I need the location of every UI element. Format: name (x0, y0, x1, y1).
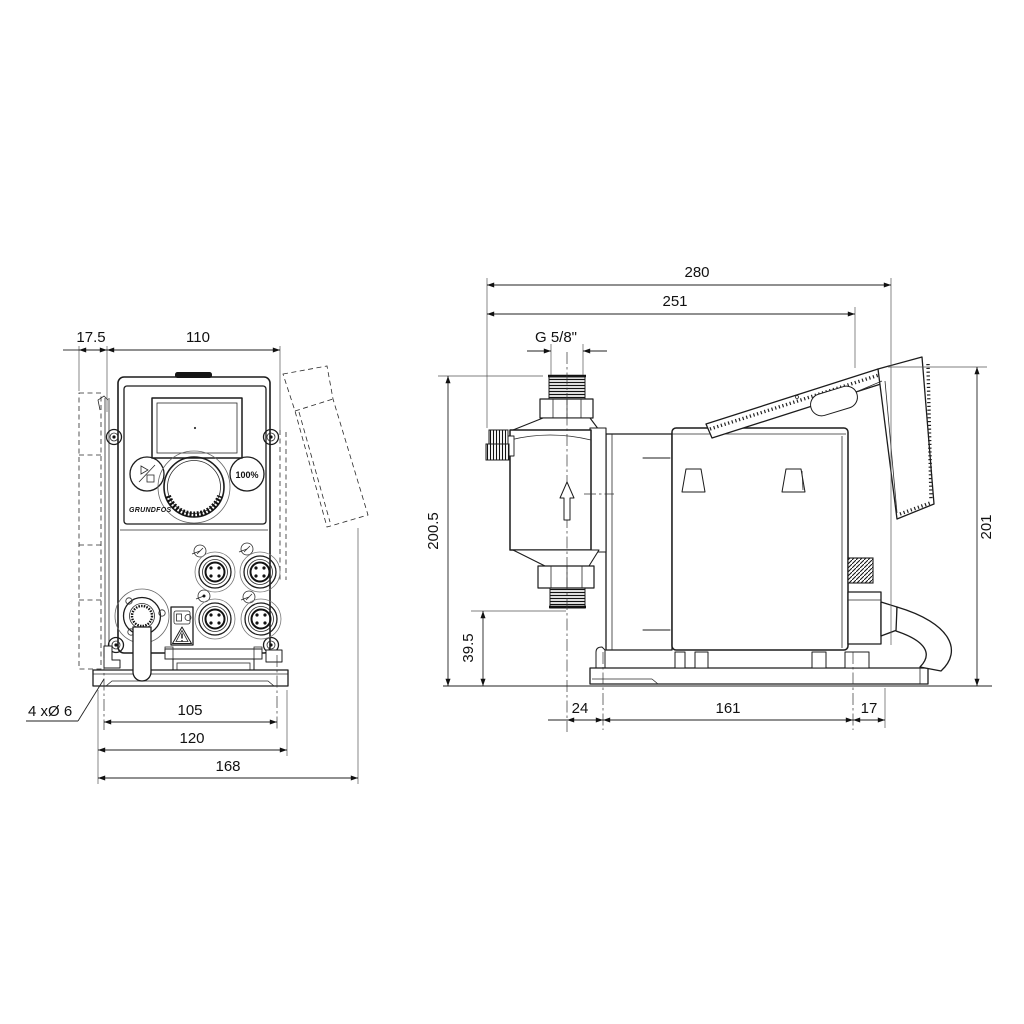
dim-hole-pitch-front: 105 (177, 702, 202, 719)
side-view: 280 251 G 5/8" 200.5 39.5 201 24 (425, 264, 995, 732)
suction-union-nut (538, 566, 594, 588)
mounting-plate-dashed (79, 393, 109, 669)
dim-hole-to-rear: 17 (861, 700, 878, 717)
head-body (510, 430, 591, 550)
power-cable-side (896, 607, 951, 671)
dim-thread-size: G 5/8" (535, 329, 577, 346)
brand-logo: GRUNDFOS (129, 507, 171, 514)
technical-drawing-page: 100% GRUNDFOS (0, 0, 1024, 1024)
dosing-pump-dimensional-drawing: 100% GRUNDFOS (0, 0, 1024, 1024)
dim-overall-depth: 280 (684, 264, 709, 281)
open-cover-dashed (280, 366, 368, 583)
dim-rear-height: 201 (978, 514, 995, 539)
rear-threaded-stub (848, 558, 873, 583)
vent-valve-knob (489, 430, 508, 444)
dim-offset: 17.5 (76, 329, 105, 346)
top-handle (175, 372, 212, 378)
dosing-head (486, 376, 606, 608)
power-cable-front (133, 627, 151, 681)
holes-note: 4 xØ 6 (28, 703, 72, 720)
discharge-union-nut (540, 399, 593, 418)
cover-clip (782, 469, 805, 492)
cover-clip (682, 469, 705, 492)
dim-depth-to-hinge: 251 (662, 293, 687, 310)
dim-height: 200.5 (425, 512, 442, 550)
dim-hole-pitch-side: 161 (715, 700, 740, 717)
front-view: 100% GRUNDFOS (26, 329, 368, 784)
dim-overall-width: 168 (215, 758, 240, 775)
dim-base-width: 120 (179, 730, 204, 747)
base-plate-front (93, 670, 288, 686)
head-backplate (590, 428, 606, 552)
dim-width: 110 (186, 329, 210, 346)
dim-valve-height: 39.5 (460, 633, 477, 662)
base-plate-side (590, 647, 928, 684)
hundred-percent-label: 100% (235, 470, 258, 480)
pump-housing-side (606, 428, 869, 668)
dim-front-to-hole: 24 (572, 700, 589, 717)
suction-thread (550, 588, 585, 608)
cable-gland-cone (881, 602, 897, 636)
